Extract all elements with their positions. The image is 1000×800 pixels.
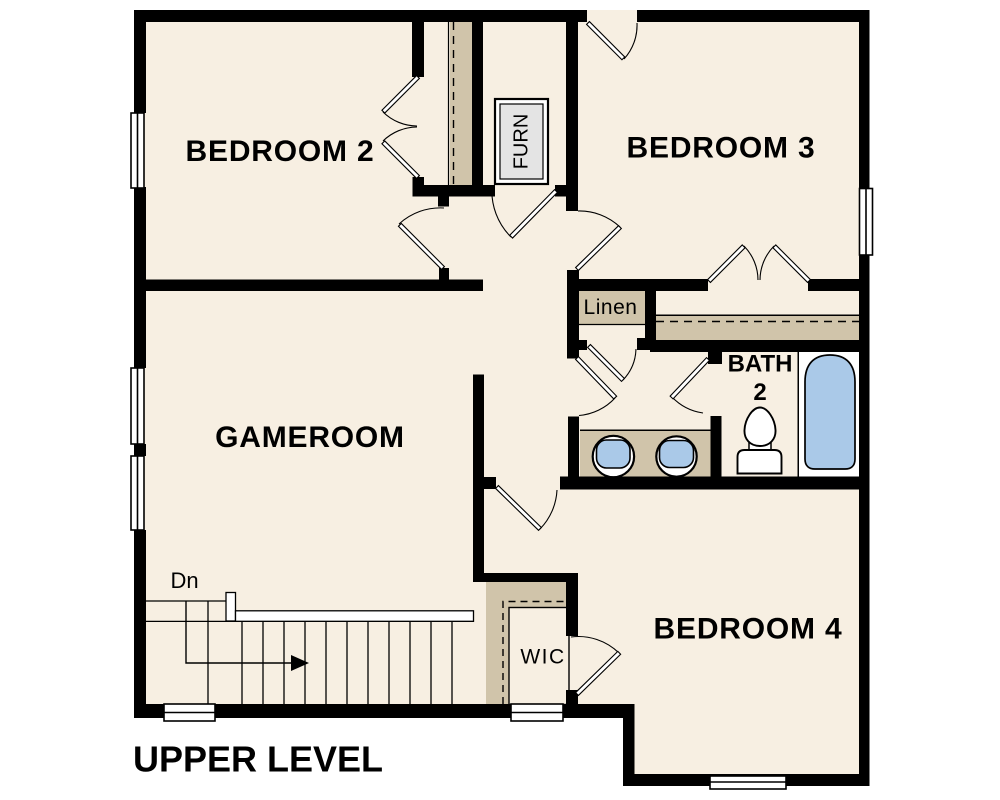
svg-text:FURN: FURN (511, 114, 533, 170)
svg-text:BEDROOM 4: BEDROOM 4 (654, 613, 843, 646)
svg-text:BEDROOM 3: BEDROOM 3 (627, 132, 816, 165)
svg-text:Dn: Dn (171, 568, 199, 593)
svg-text:BATH: BATH (728, 351, 793, 378)
svg-text:Linen: Linen (584, 296, 638, 319)
svg-text:BEDROOM 2: BEDROOM 2 (186, 135, 375, 168)
svg-text:GAMEROOM: GAMEROOM (215, 421, 405, 454)
svg-text:WIC: WIC (520, 646, 565, 669)
svg-text:UPPER LEVEL: UPPER LEVEL (133, 739, 383, 780)
svg-text:2: 2 (753, 379, 766, 406)
